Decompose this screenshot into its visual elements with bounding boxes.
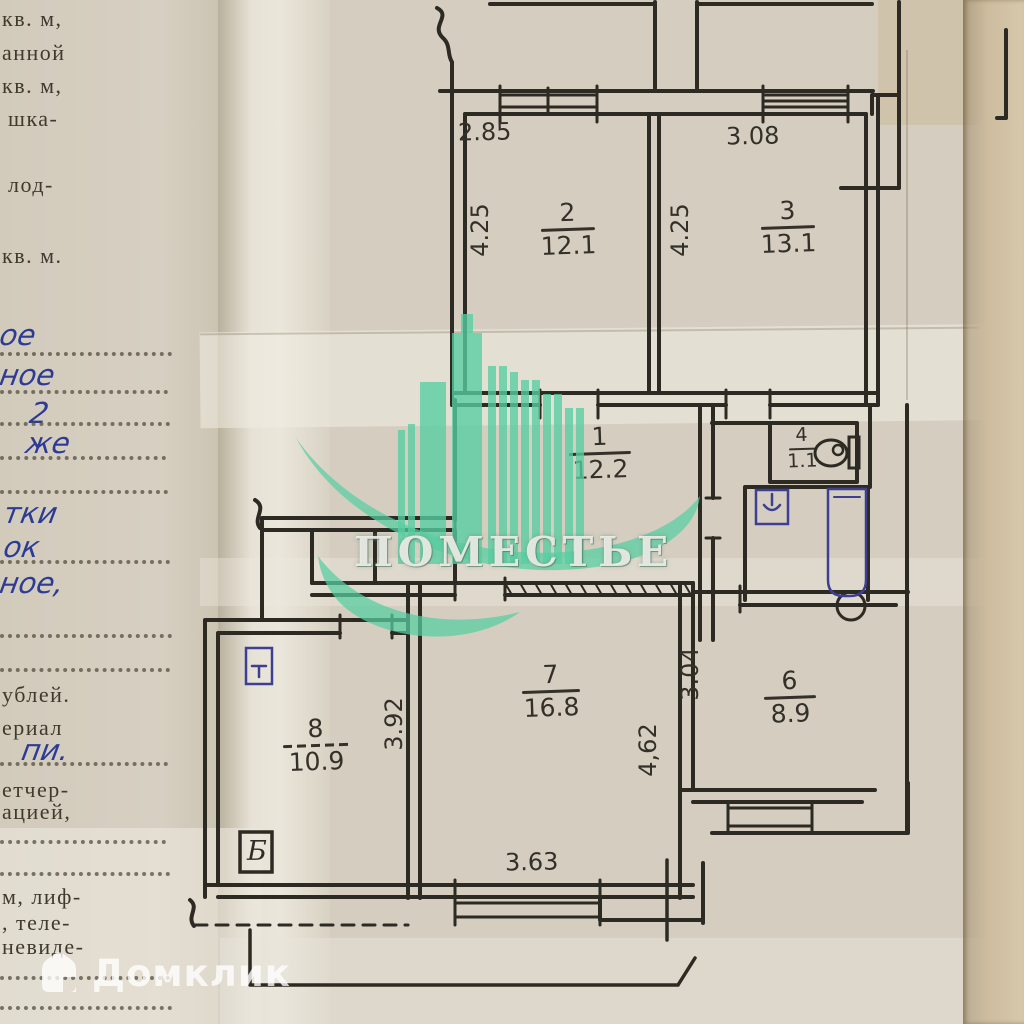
pomestie-logo-watermark xyxy=(0,0,1024,1024)
building-silhouette xyxy=(398,314,584,564)
pomestie-wordmark: ПОМЕСТЬЕ xyxy=(354,528,673,576)
domclick-wordmark: Домклик xyxy=(92,952,291,995)
domclick-house-icon xyxy=(34,948,84,998)
domclick-watermark: Домклик xyxy=(34,948,291,998)
